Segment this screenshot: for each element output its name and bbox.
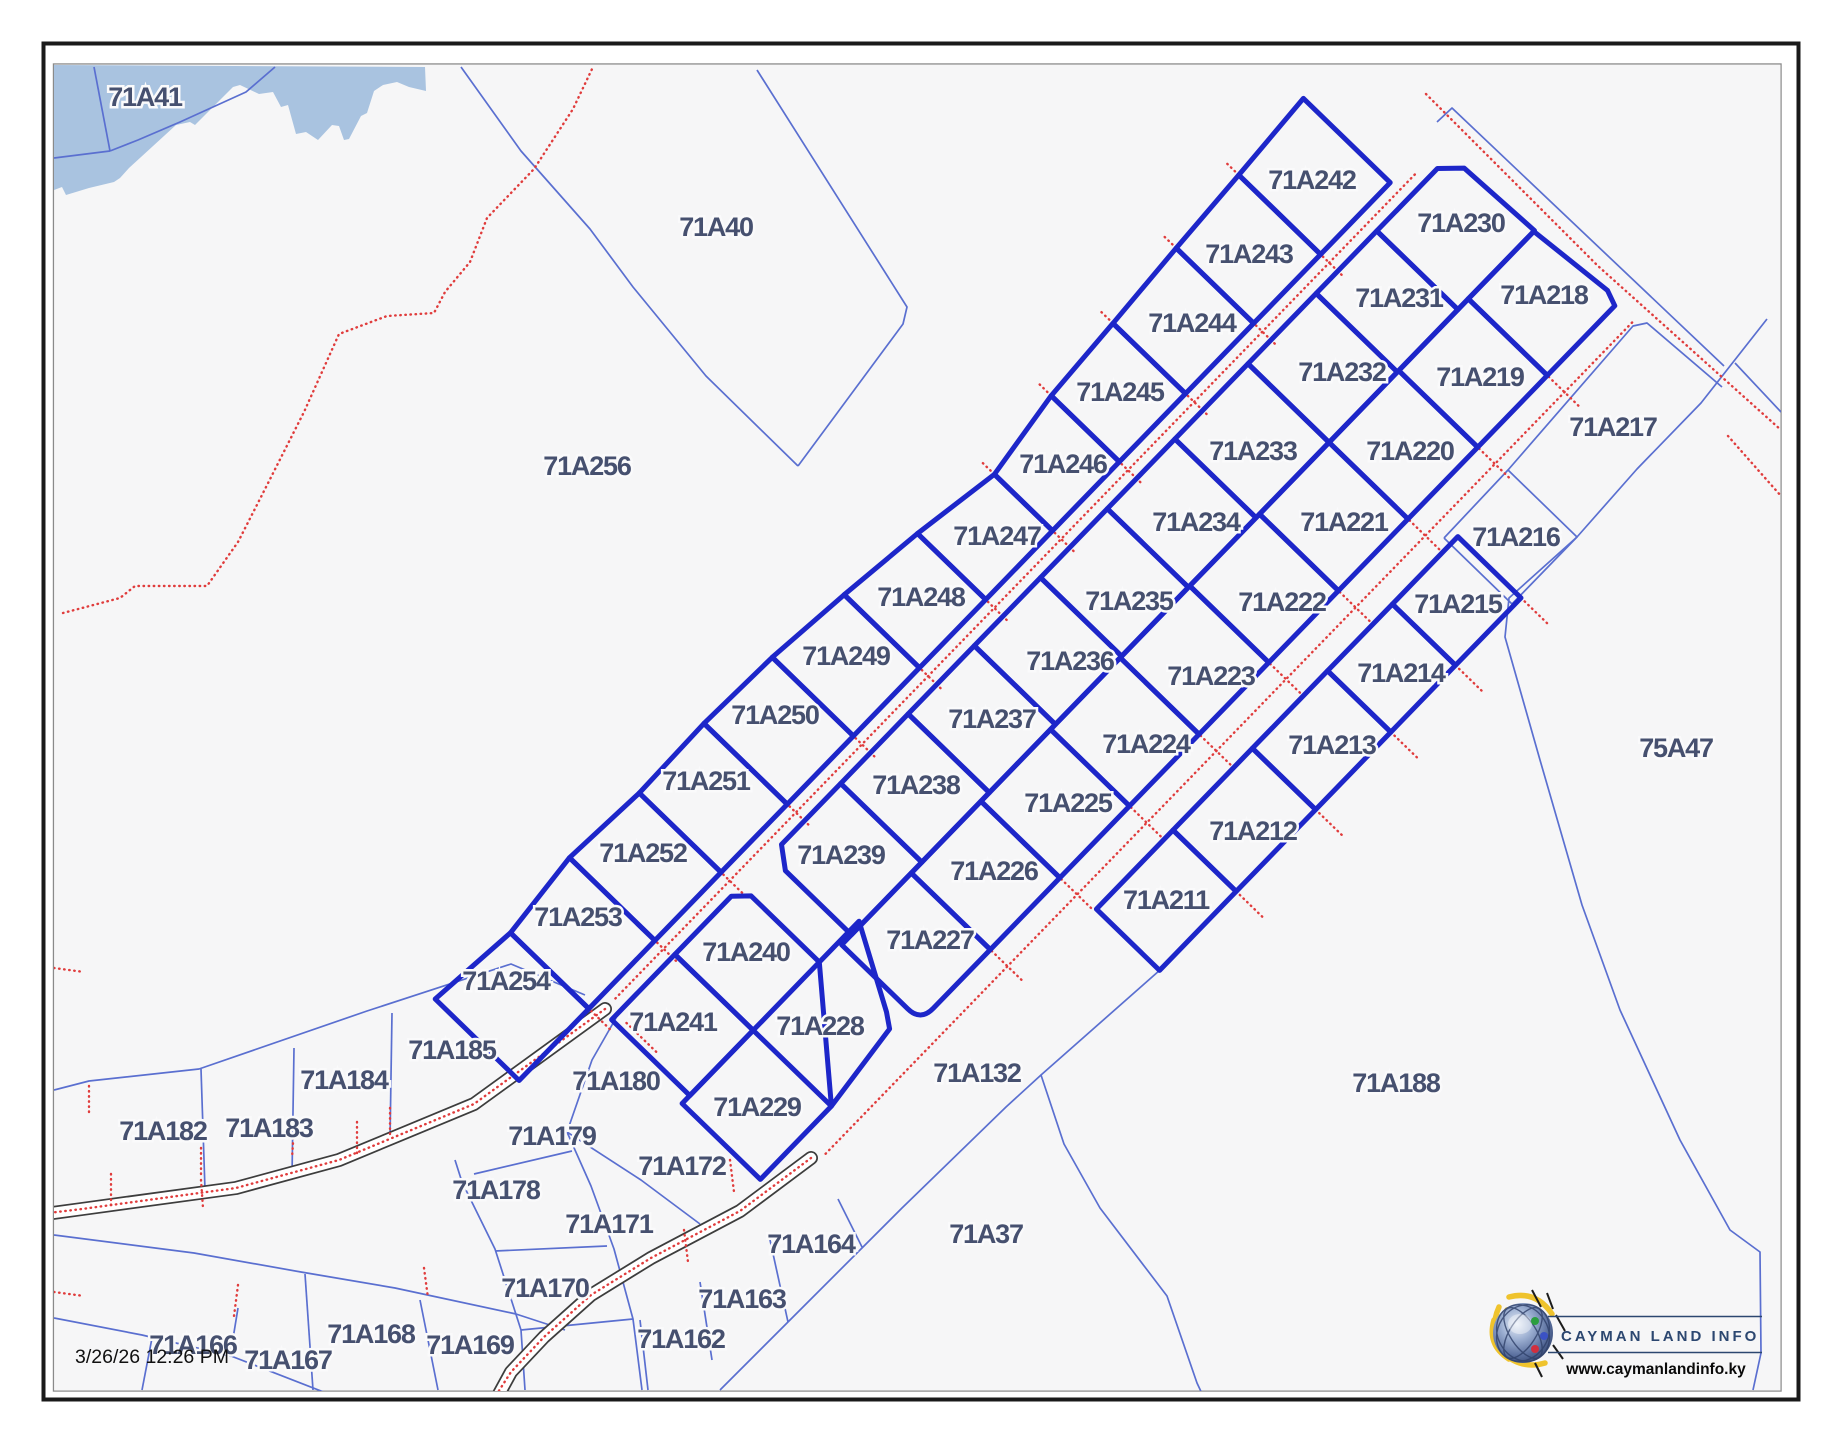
svg-text:71A185: 71A185 <box>408 1035 497 1065</box>
svg-text:71A214: 71A214 <box>1357 658 1446 688</box>
svg-text:71A217: 71A217 <box>1569 412 1657 442</box>
svg-text:71A184: 71A184 <box>300 1065 389 1095</box>
svg-text:71A230: 71A230 <box>1417 208 1505 238</box>
svg-text:71A232: 71A232 <box>1298 357 1386 387</box>
svg-text:71A170: 71A170 <box>501 1273 589 1303</box>
svg-text:71A168: 71A168 <box>327 1319 416 1349</box>
svg-text:71A226: 71A226 <box>950 856 1039 886</box>
svg-text:71A235: 71A235 <box>1085 586 1174 616</box>
svg-text:71A237: 71A237 <box>948 704 1036 734</box>
svg-text:71A233: 71A233 <box>1209 436 1298 466</box>
svg-text:71A163: 71A163 <box>698 1284 787 1314</box>
svg-text:71A244: 71A244 <box>1148 308 1237 338</box>
svg-text:71A254: 71A254 <box>462 966 551 996</box>
svg-text:71A256: 71A256 <box>543 451 632 481</box>
svg-text:71A216: 71A216 <box>1472 522 1561 552</box>
svg-text:71A172: 71A172 <box>638 1151 726 1181</box>
svg-text:71A220: 71A220 <box>1366 436 1454 466</box>
svg-text:71A188: 71A188 <box>1352 1068 1441 1098</box>
svg-text:71A167: 71A167 <box>244 1345 332 1375</box>
svg-text:71A132: 71A132 <box>933 1058 1021 1088</box>
svg-text:71A241: 71A241 <box>629 1007 718 1037</box>
svg-text:71A227: 71A227 <box>886 925 974 955</box>
svg-text:71A178: 71A178 <box>452 1175 541 1205</box>
svg-text:71A243: 71A243 <box>1205 239 1294 269</box>
svg-text:71A183: 71A183 <box>225 1113 314 1143</box>
svg-text:71A223: 71A223 <box>1167 661 1256 691</box>
svg-text:71A221: 71A221 <box>1300 507 1389 537</box>
svg-text:71A218: 71A218 <box>1500 280 1589 310</box>
svg-text:71A225: 71A225 <box>1024 788 1113 818</box>
svg-text:71A219: 71A219 <box>1436 362 1525 392</box>
svg-text:71A251: 71A251 <box>662 766 751 796</box>
svg-text:71A249: 71A249 <box>802 641 891 671</box>
svg-text:71A162: 71A162 <box>637 1324 725 1354</box>
svg-text:71A179: 71A179 <box>508 1121 597 1151</box>
svg-text:71A240: 71A240 <box>702 937 790 967</box>
svg-text:71A211: 71A211 <box>1123 885 1210 915</box>
svg-text:71A224: 71A224 <box>1102 729 1191 759</box>
svg-text:71A222: 71A222 <box>1238 587 1326 617</box>
svg-text:71A213: 71A213 <box>1288 730 1377 760</box>
svg-text:71A246: 71A246 <box>1019 449 1108 479</box>
svg-text:71A247: 71A247 <box>953 521 1041 551</box>
svg-text:71A248: 71A248 <box>877 582 966 612</box>
svg-text:71A234: 71A234 <box>1152 507 1241 537</box>
svg-text:71A231: 71A231 <box>1355 283 1444 313</box>
svg-text:71A229: 71A229 <box>713 1092 802 1122</box>
svg-text:71A212: 71A212 <box>1209 816 1297 846</box>
svg-text:71A171: 71A171 <box>565 1209 654 1239</box>
svg-text:71A164: 71A164 <box>767 1229 856 1259</box>
svg-text:3/26/26 12:26 PM: 3/26/26 12:26 PM <box>75 1346 229 1368</box>
svg-text:71A236: 71A236 <box>1026 646 1115 676</box>
svg-text:71A250: 71A250 <box>731 700 819 730</box>
svg-text:71A238: 71A238 <box>872 770 961 800</box>
svg-text:71A41: 71A41 <box>108 82 183 112</box>
svg-text:71A37: 71A37 <box>949 1219 1023 1249</box>
svg-text:71A245: 71A245 <box>1076 377 1165 407</box>
svg-text:www.caymanlandinfo.ky: www.caymanlandinfo.ky <box>1565 1361 1746 1378</box>
svg-text:71A40: 71A40 <box>679 212 753 242</box>
svg-text:CAYMAN LAND INFO: CAYMAN LAND INFO <box>1561 1328 1759 1345</box>
svg-text:71A253: 71A253 <box>534 902 623 932</box>
svg-text:71A215: 71A215 <box>1414 589 1503 619</box>
svg-text:71A252: 71A252 <box>599 838 687 868</box>
svg-text:71A182: 71A182 <box>119 1116 207 1146</box>
svg-text:71A228: 71A228 <box>776 1011 865 1041</box>
svg-text:71A242: 71A242 <box>1268 165 1356 195</box>
svg-text:71A180: 71A180 <box>572 1066 660 1096</box>
svg-text:71A169: 71A169 <box>426 1330 515 1360</box>
svg-text:75A47: 75A47 <box>1639 733 1713 763</box>
svg-text:71A239: 71A239 <box>797 840 886 870</box>
